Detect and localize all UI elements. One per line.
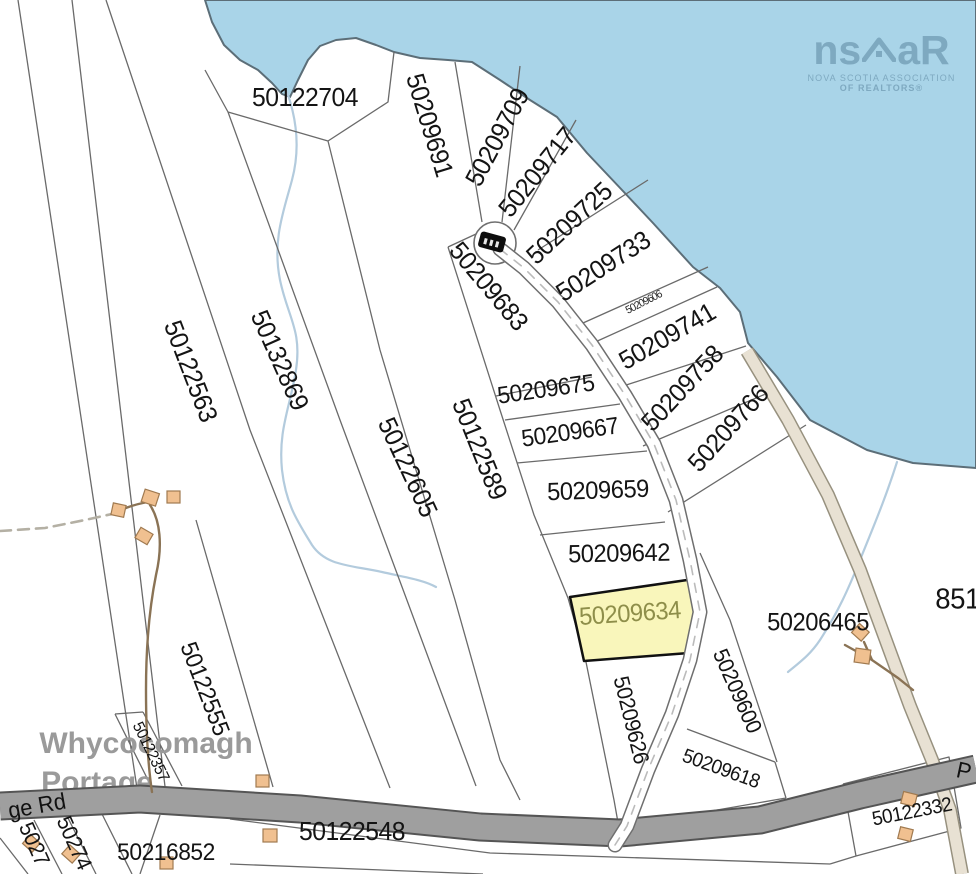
nsar-logo-right: aR bbox=[897, 32, 949, 69]
building-icon bbox=[854, 648, 871, 664]
house-roof-icon bbox=[862, 30, 896, 67]
basemap-svg: Whycocomagh Portage bbox=[0, 0, 976, 874]
building-icon bbox=[256, 775, 269, 787]
building-icon bbox=[111, 503, 126, 517]
nsar-tagline-1: NOVA SCOTIA ASSOCIATION bbox=[794, 73, 969, 83]
nsar-logo-left: ns bbox=[813, 32, 861, 69]
nsar-logo: ns aR NOVA SCOTIA ASSOCIATION OF REALTOR… bbox=[794, 30, 969, 93]
building-icon bbox=[901, 791, 917, 806]
building-icon bbox=[263, 829, 277, 842]
building-icon bbox=[898, 827, 914, 842]
nsar-tagline-2: OF REALTORS® bbox=[794, 83, 969, 93]
building-icon bbox=[160, 857, 173, 869]
building-icon bbox=[167, 491, 180, 503]
nsar-logo-letters: ns aR bbox=[794, 30, 969, 69]
map-canvas[interactable]: Whycocomagh Portage bbox=[0, 0, 976, 874]
